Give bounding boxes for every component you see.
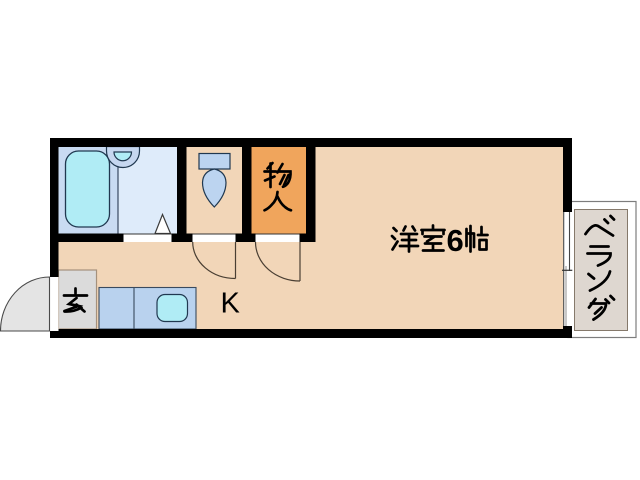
svg-text:K: K	[221, 288, 241, 320]
svg-text:6: 6	[447, 223, 464, 258]
